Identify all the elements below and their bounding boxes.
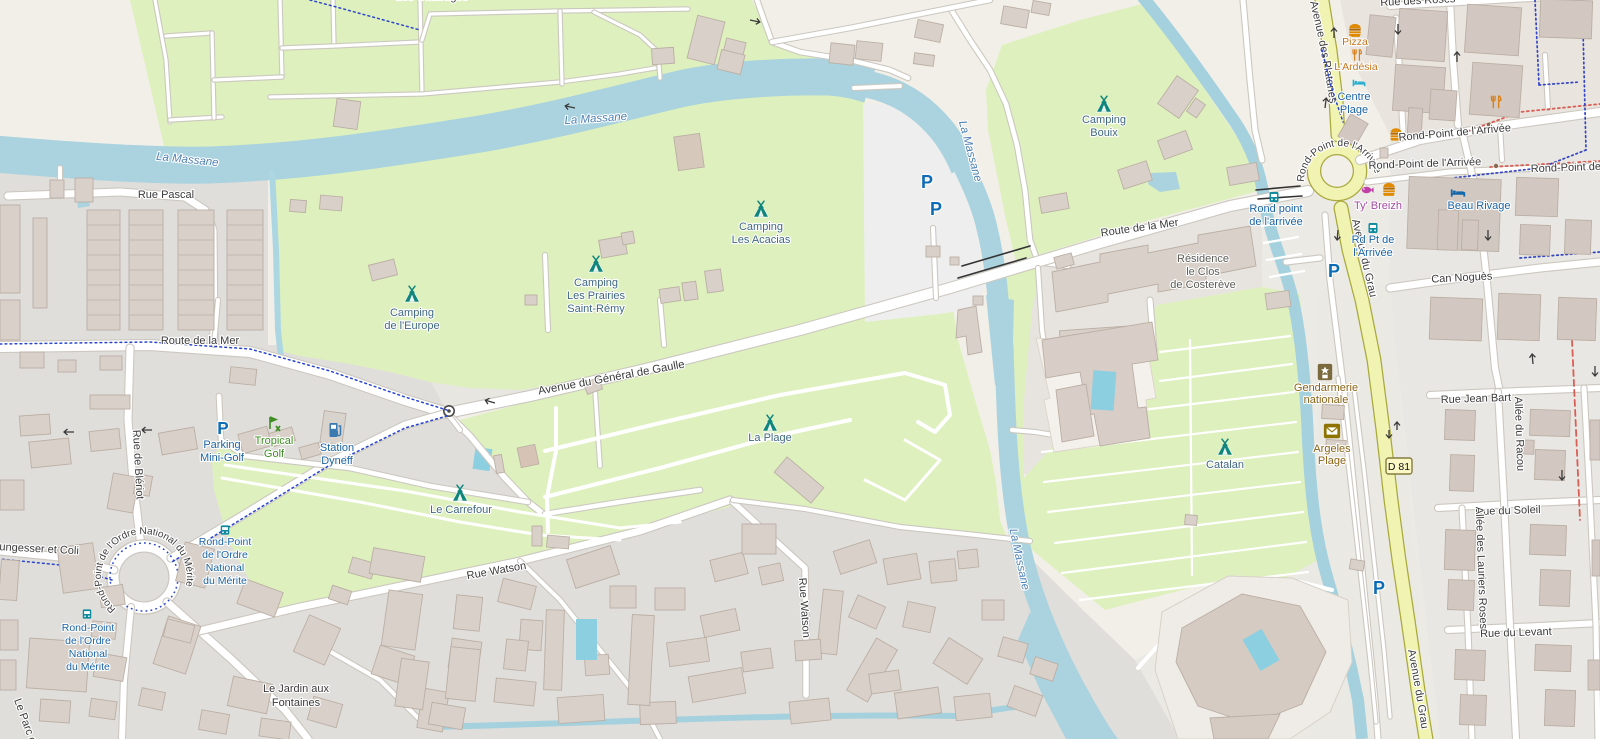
svg-text:Ty' Breizh: Ty' Breizh: [1354, 200, 1402, 212]
svg-text:Rond-Point de: Rond-Point de: [1531, 161, 1600, 175]
svg-text:Rue Pascal: Rue Pascal: [138, 189, 194, 201]
svg-text:Route de la Mer: Route de la Mer: [161, 335, 240, 347]
svg-text:Les Prairies: Les Prairies: [567, 290, 626, 302]
svg-text:l'Arrivée: l'Arrivée: [1353, 247, 1392, 259]
svg-text:Rond point: Rond point: [1249, 203, 1302, 215]
svg-text:Dyneff: Dyneff: [321, 455, 354, 467]
svg-text:Rue Jean Bart: Rue Jean Bart: [1441, 392, 1512, 406]
svg-text:P: P: [930, 199, 942, 219]
svg-text:Rd Pt de: Rd Pt de: [1352, 234, 1395, 246]
svg-text:National: National: [206, 562, 245, 574]
svg-text:La Plage: La Plage: [748, 432, 791, 444]
svg-text:Camping: Camping: [1082, 114, 1126, 126]
svg-text:Rond-Point: Rond-Point: [62, 622, 115, 634]
svg-text:de Costerève: de Costerève: [1170, 279, 1235, 291]
svg-text:le Clos: le Clos: [1186, 266, 1220, 278]
svg-text:Fontaines: Fontaines: [272, 697, 321, 709]
svg-text:Plage: Plage: [1318, 455, 1346, 467]
svg-text:du Mérite: du Mérite: [66, 661, 110, 673]
svg-text:Le Jardin aux: Le Jardin aux: [263, 683, 330, 695]
svg-text:P: P: [1328, 261, 1340, 281]
svg-text:Rue du Levant: Rue du Levant: [1480, 626, 1552, 640]
svg-text:Les Acacias: Les Acacias: [732, 234, 791, 246]
svg-text:Beau Rivage: Beau Rivage: [1448, 200, 1511, 212]
svg-text:du Mérite: du Mérite: [203, 575, 247, 587]
svg-text:Centre: Centre: [1337, 91, 1370, 103]
svg-text:de l'Ordre: de l'Ordre: [202, 549, 248, 561]
svg-text:Tropical: Tropical: [255, 435, 294, 447]
svg-text:de l'arrivée: de l'arrivée: [1249, 216, 1302, 228]
svg-text:Golf: Golf: [264, 448, 285, 460]
svg-text:National: National: [69, 648, 108, 660]
svg-text:L'Ardésia: L'Ardésia: [1334, 61, 1378, 73]
svg-text:Le Carrefour: Le Carrefour: [430, 504, 492, 516]
svg-text:Station: Station: [320, 442, 354, 454]
svg-text:P: P: [217, 419, 228, 438]
svg-text:Gendarmerie: Gendarmerie: [1294, 382, 1358, 394]
svg-text:Parking: Parking: [203, 439, 240, 451]
svg-text:Plage: Plage: [1340, 104, 1368, 116]
svg-text:Bouix: Bouix: [1090, 127, 1118, 139]
svg-text:Catalan: Catalan: [1206, 459, 1244, 471]
svg-text:de l'Europe: de l'Europe: [384, 320, 439, 332]
svg-text:de l'Ordre: de l'Ordre: [65, 635, 111, 647]
svg-text:Mini-Golf: Mini-Golf: [200, 452, 245, 464]
svg-text:Rond-Point: Rond-Point: [199, 536, 252, 548]
svg-text:P: P: [1373, 578, 1385, 598]
svg-text:Argeles: Argeles: [1313, 443, 1351, 455]
svg-text:P: P: [921, 172, 933, 192]
svg-text:D 81: D 81: [1388, 461, 1410, 473]
svg-text:Résidence: Résidence: [1177, 253, 1229, 265]
svg-text:Pizza: Pizza: [1342, 36, 1368, 48]
svg-text:nationale: nationale: [1304, 394, 1349, 406]
svg-text:Camping: Camping: [574, 277, 618, 289]
svg-text:Camping: Camping: [390, 307, 434, 319]
svg-text:Les Ombrages: Les Ombrages: [396, 0, 469, 3]
svg-text:Saint-Rémy: Saint-Rémy: [567, 303, 625, 315]
svg-text:Camping: Camping: [739, 221, 783, 233]
